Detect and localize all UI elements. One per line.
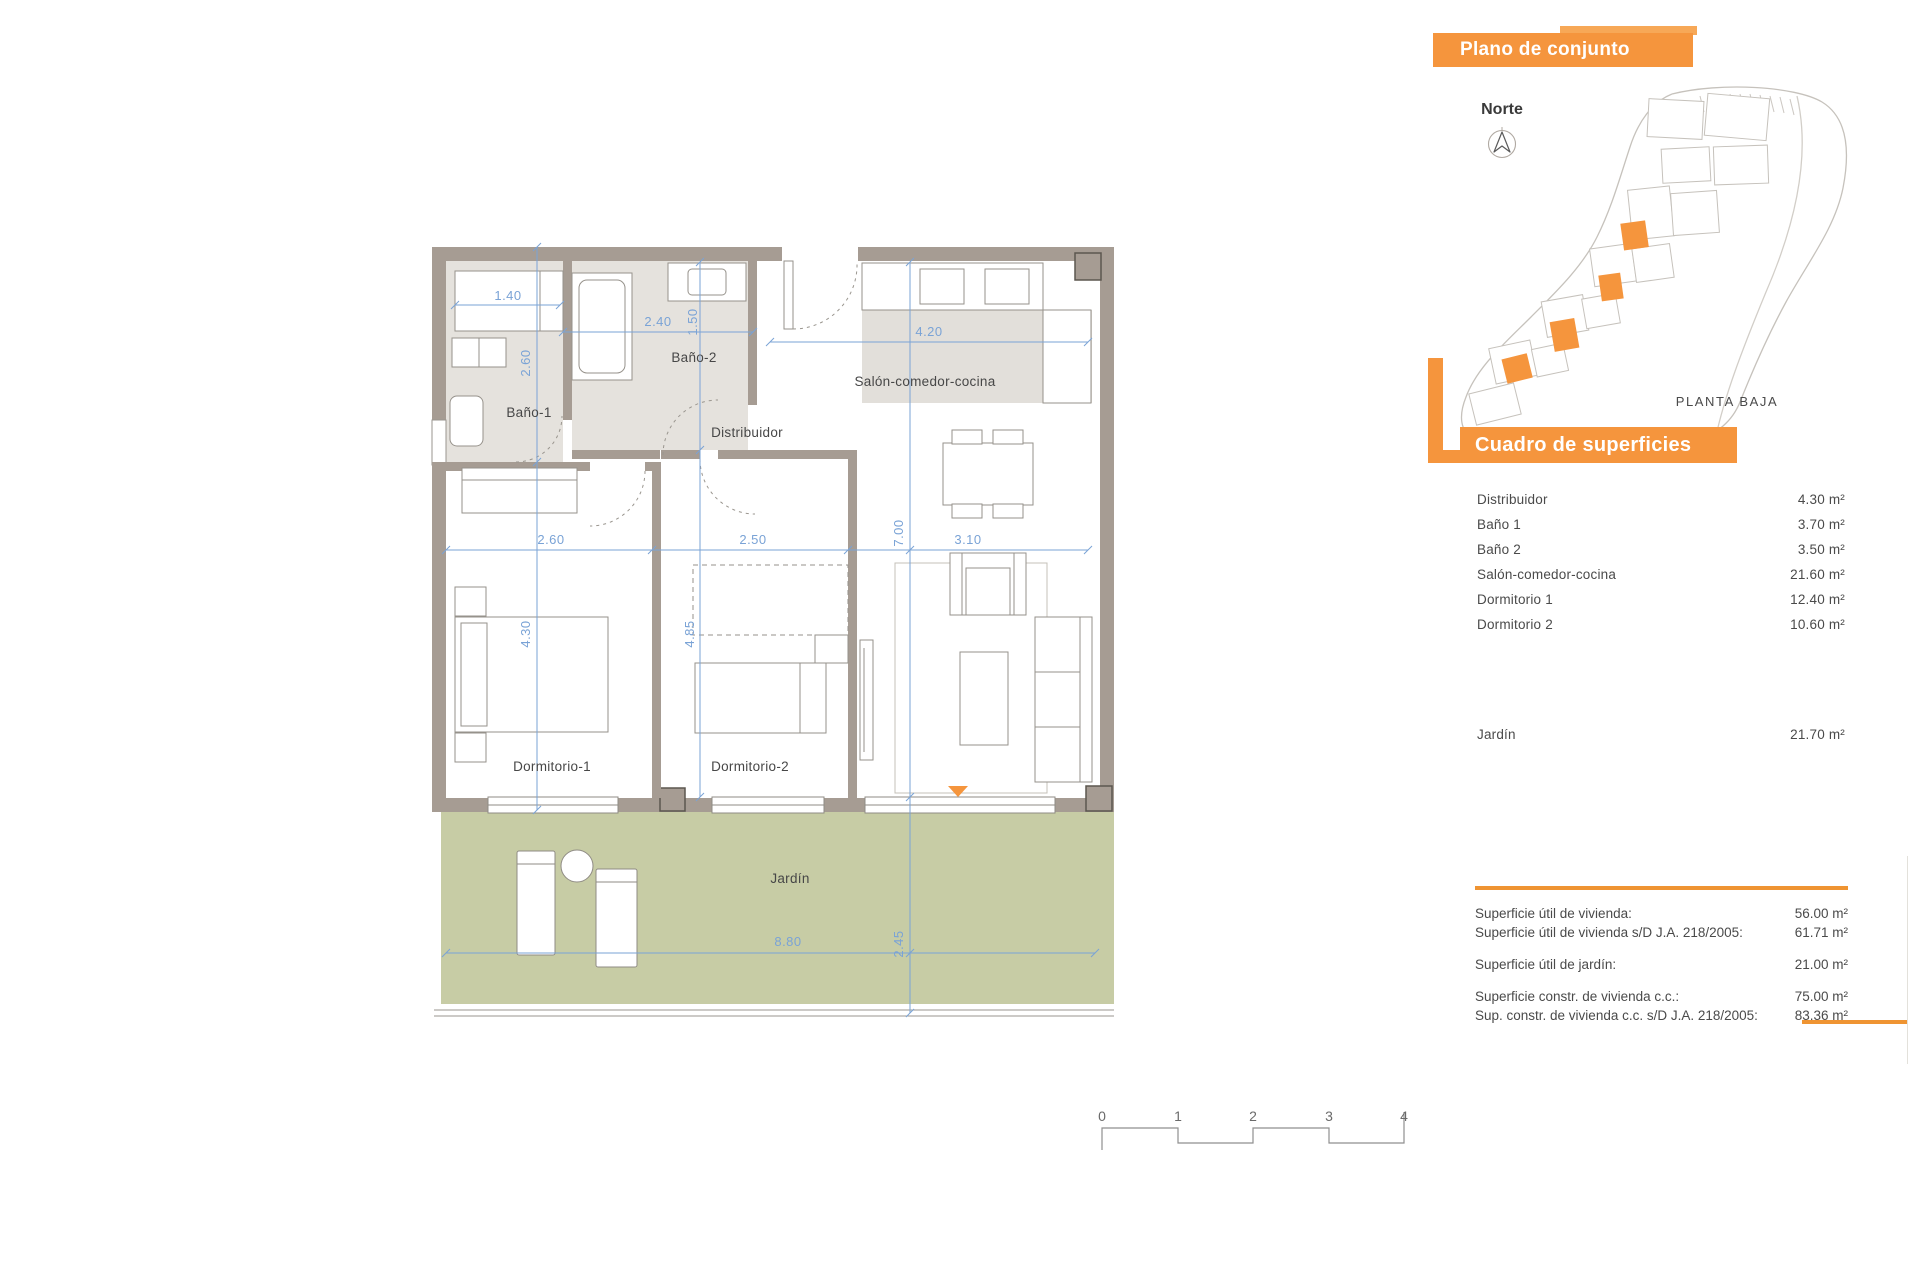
washer (452, 338, 479, 367)
nightstand (815, 635, 848, 663)
row-label: Jardín (1477, 722, 1516, 747)
cuadro-title: Cuadro de superficies (1475, 434, 1691, 456)
page-edge-line (1907, 856, 1908, 1064)
scale-tick-3: 3 (1325, 1108, 1333, 1124)
dim-dorm1-w: 2.60 (537, 532, 564, 547)
dim-dorm2-h: 4.85 (682, 620, 697, 647)
tv-unit (860, 640, 873, 760)
dim-salon-h: 7.00 (891, 519, 906, 546)
row-value: 10.60 m² (1790, 612, 1845, 637)
room-label-dorm1: Dormitorio-1 (513, 759, 591, 774)
cuadro-header: Cuadro de superficies (1460, 427, 1737, 463)
row-label: Distribuidor (1477, 487, 1548, 512)
chair (952, 430, 982, 444)
dim-jardin-w: 8.80 (774, 934, 801, 949)
room-label-bano2: Baño-2 (671, 350, 716, 365)
nightstand (455, 733, 486, 762)
bathtub (572, 273, 632, 380)
table-row: Jardín 21.70 m² (1477, 722, 1845, 747)
scale-tick-0: 0 (1098, 1108, 1106, 1124)
room-label-salon: Salón-comedor-cocina (854, 374, 995, 389)
table-row: Salón-comedor-cocina 21.60 m² (1477, 562, 1845, 587)
chair (952, 504, 982, 518)
dim-bano2-w: 2.40 (644, 314, 671, 329)
row-label: Dormitorio 2 (1477, 612, 1553, 637)
row-value: 21.60 m² (1790, 562, 1845, 587)
table-row: Dormitorio 1 12.40 m² (1477, 587, 1845, 612)
nightstand (455, 587, 486, 616)
summary-rule-top (1475, 886, 1848, 890)
row-label: Dormitorio 1 (1477, 587, 1553, 612)
summary-row: Superficie útil de vivienda: 56.00 m² (1475, 904, 1848, 923)
sun-lounger (517, 851, 555, 955)
summary-row: Superficie útil de vivienda s/D J.A. 218… (1475, 923, 1848, 942)
room-label-jardin: Jardín (770, 871, 809, 886)
table-row: Baño 1 3.70 m² (1477, 512, 1845, 537)
row-value: 61.71 m² (1795, 923, 1848, 942)
entrance-door-leaf (784, 261, 793, 329)
row-label: Superficie útil de vivienda: (1475, 904, 1632, 923)
room-label-distribuidor: Distribuidor (711, 425, 783, 440)
hall-wardrobe (462, 468, 577, 513)
cuadro-bracket (1428, 358, 1443, 463)
row-label: Baño 2 (1477, 537, 1521, 562)
table-row: Baño 2 3.50 m² (1477, 537, 1845, 562)
cuadro-bracket-foot (1428, 450, 1462, 463)
dim-salon-top-w: 4.20 (915, 324, 942, 339)
bed-dorm1 (455, 587, 608, 762)
scale-tick-2: 2 (1249, 1108, 1257, 1124)
row-label: Superficie útil de vivienda s/D J.A. 218… (1475, 923, 1743, 942)
summary-row: Superficie constr. de vivienda c.c.: 75.… (1475, 987, 1848, 1006)
scale-tick-1: 1 (1174, 1108, 1182, 1124)
row-value: 75.00 m² (1795, 987, 1848, 1006)
chair (993, 430, 1023, 444)
vanity-sink (668, 263, 746, 301)
dim-salon-w: 3.10 (954, 532, 981, 547)
dim-closet-w: 1.40 (494, 288, 521, 303)
coffee-table (960, 652, 1008, 745)
dim-jardin-h: 2.45 (891, 930, 906, 957)
sun-lounger (596, 869, 637, 967)
row-label: Superficie útil de jardín: (1475, 955, 1616, 974)
dim-dorm2-w: 2.50 (739, 532, 766, 547)
row-value: 21.70 m² (1790, 722, 1845, 747)
room-label-bano1: Baño-1 (506, 405, 551, 420)
dim-bano1-h: 2.60 (518, 349, 533, 376)
bed-dorm2 (693, 565, 848, 733)
summary-block: Superficie útil de vivienda: 56.00 m² Su… (1475, 886, 1848, 1025)
plano-header: Plano de conjunto (1433, 33, 1693, 67)
table-row: Dormitorio 2 10.60 m² (1477, 612, 1845, 637)
dim-bano2-h: 1.50 (685, 308, 700, 335)
row-value: 21.00 m² (1795, 955, 1848, 974)
row-value: 56.00 m² (1795, 904, 1848, 923)
floor-plan: 1.40 2.40 4.20 2.60 2.50 3.10 8.80 2.60 … (430, 190, 1130, 1050)
garden-area (434, 812, 1114, 1016)
row-label: Salón-comedor-cocina (1477, 562, 1616, 587)
table-row: Distribuidor 4.30 m² (1477, 487, 1845, 512)
plan-sheet: 1.40 2.40 4.20 2.60 2.50 3.10 8.80 2.60 … (0, 0, 1920, 1280)
chair (993, 504, 1023, 518)
summary-row: Superficie útil de jardín: 21.00 m² (1475, 955, 1848, 974)
entry-marker-icon (948, 786, 968, 797)
jardin-table-row: Jardín 21.70 m² (1477, 722, 1845, 747)
room-label-dorm2: Dormitorio-2 (711, 759, 789, 774)
planta-baja-label: PLANTA BAJA (1676, 394, 1779, 409)
dining-table (943, 430, 1033, 518)
surfaces-table: Distribuidor 4.30 m² Baño 1 3.70 m² Baño… (1477, 487, 1845, 637)
row-value: 3.50 m² (1798, 537, 1845, 562)
dryer (479, 338, 506, 367)
scale-tick-4: 4 (1400, 1108, 1408, 1124)
row-value: 3.70 m² (1798, 512, 1845, 537)
row-value: 12.40 m² (1790, 587, 1845, 612)
row-label: Superficie constr. de vivienda c.c.: (1475, 987, 1679, 1006)
site-plan: PLANTA BAJA (1450, 70, 1910, 450)
sofa (1035, 617, 1092, 782)
scale-bar: 0 1 2 3 4 (1085, 1095, 1425, 1165)
summary-row: Sup. constr. de vivienda c.c. s/D J.A. 2… (1475, 1006, 1848, 1025)
dim-dorm1-h: 4.30 (518, 620, 533, 647)
summary-rule-bottom (1802, 1020, 1908, 1024)
toilet (450, 396, 483, 446)
plano-title: Plano de conjunto (1460, 39, 1630, 60)
row-value: 4.30 m² (1798, 487, 1845, 512)
row-label: Sup. constr. de vivienda c.c. s/D J.A. 2… (1475, 1006, 1758, 1025)
garden-table (561, 850, 593, 882)
scale-numbers: 0 1 2 3 4 (1098, 1108, 1408, 1124)
bed-option-dashed (693, 565, 848, 635)
armchair (950, 553, 1026, 615)
row-label: Baño 1 (1477, 512, 1521, 537)
